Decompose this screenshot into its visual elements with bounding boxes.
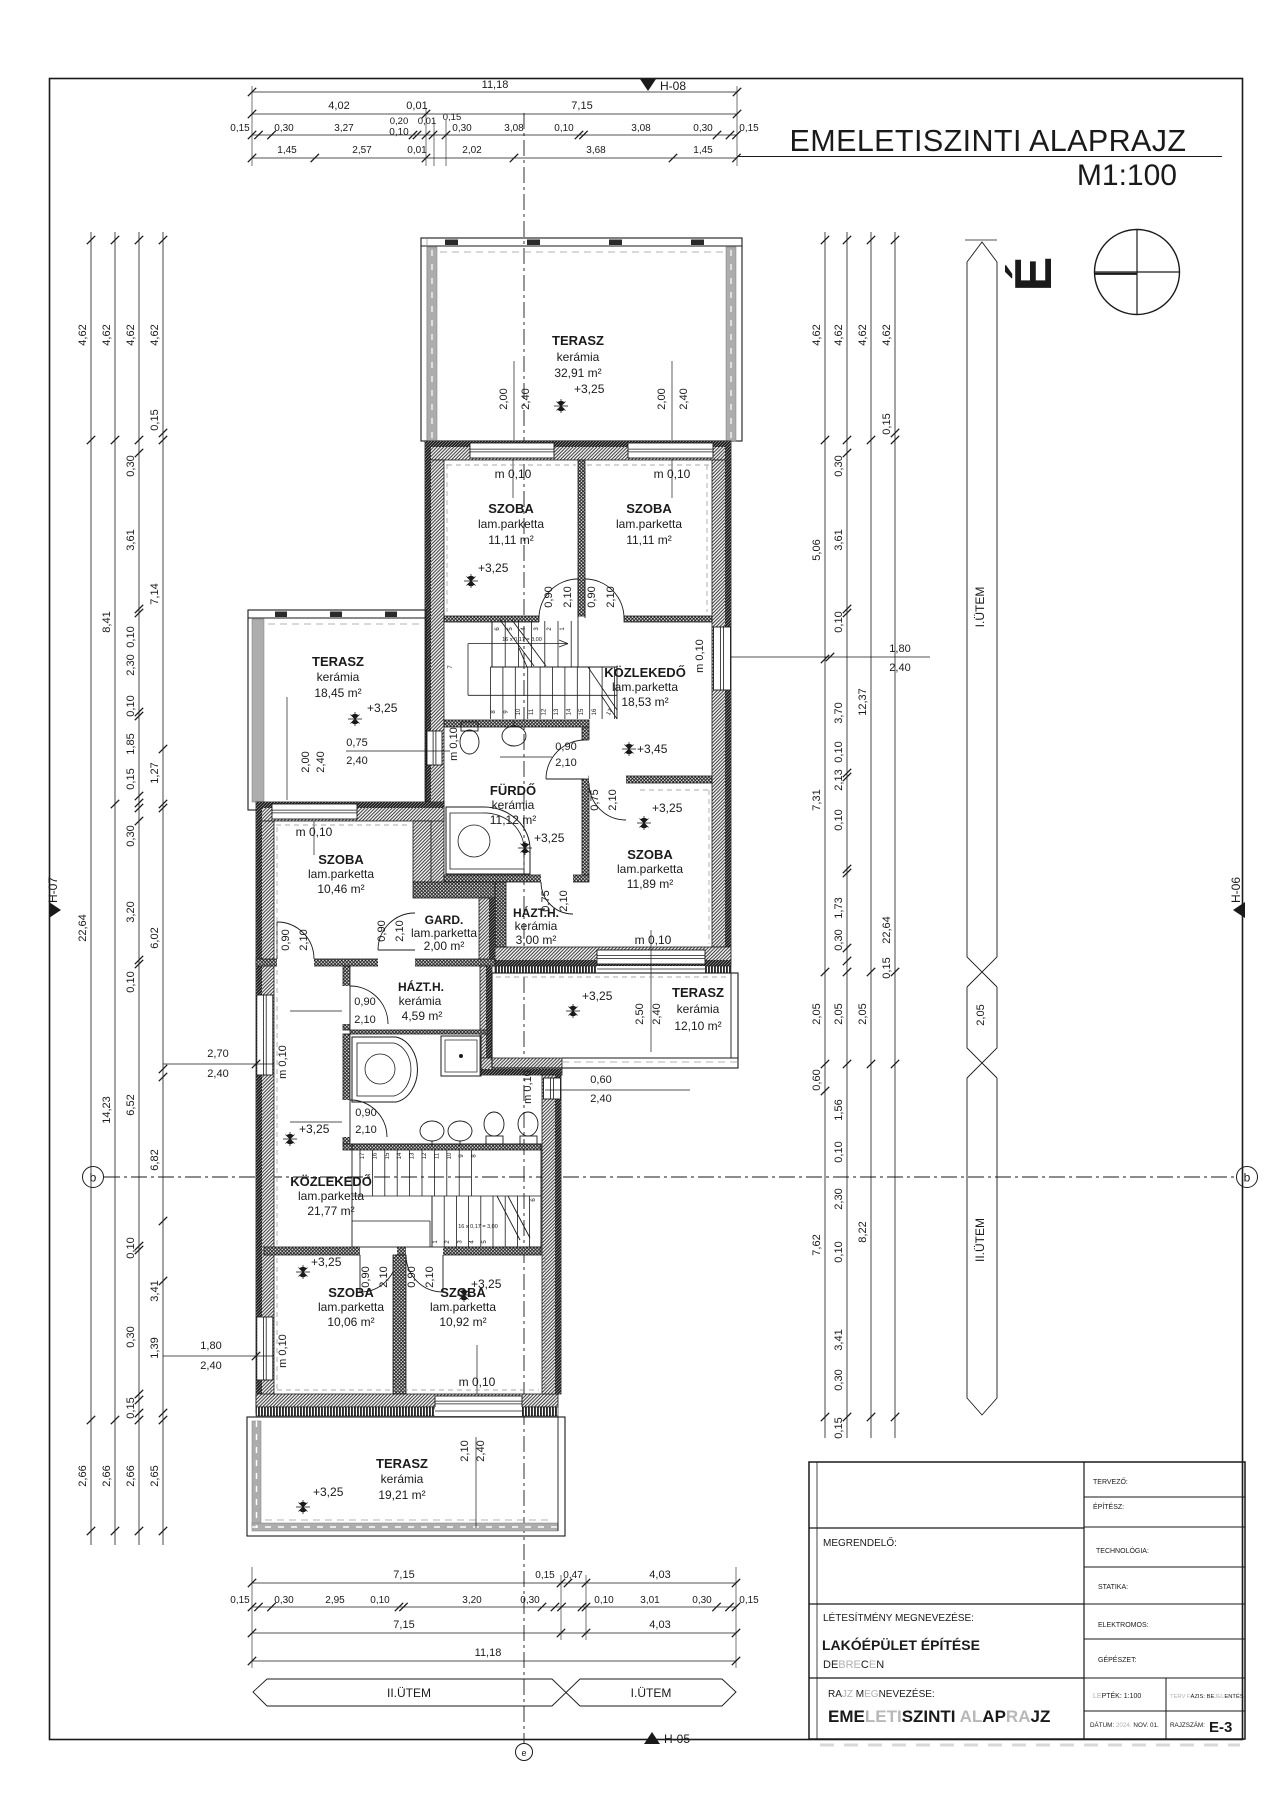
svg-text:0,15: 0,15 — [535, 1570, 555, 1581]
svg-text:kerámia: kerámia — [515, 919, 558, 933]
svg-text:0,15: 0,15 — [230, 123, 250, 134]
svg-text:0,01: 0,01 — [418, 116, 437, 127]
svg-text:16 x 0,17 = 3,00: 16 x 0,17 = 3,00 — [502, 637, 542, 643]
svg-text:TERASZ: TERASZ — [312, 654, 364, 669]
svg-text:2,66: 2,66 — [101, 1465, 113, 1486]
svg-text:2,66: 2,66 — [125, 1465, 137, 1486]
svg-text:+3,45: +3,45 — [637, 742, 668, 756]
svg-text:4,62: 4,62 — [125, 324, 137, 345]
svg-text:12: 12 — [422, 1152, 428, 1159]
svg-text:2,40: 2,40 — [207, 1068, 228, 1080]
svg-text:2,10: 2,10 — [298, 929, 310, 950]
svg-text:2,05: 2,05 — [811, 1003, 823, 1024]
svg-text:2,10: 2,10 — [605, 586, 617, 607]
svg-text:GÉPÉSZET:: GÉPÉSZET: — [1098, 1655, 1137, 1664]
svg-text:m 0,10: m 0,10 — [522, 1070, 534, 1104]
svg-text:0,15: 0,15 — [125, 1397, 137, 1418]
svg-text:3,68: 3,68 — [586, 145, 606, 156]
svg-text:II.ÜTEM: II.ÜTEM — [973, 1218, 987, 1262]
svg-text:H-05: H-05 — [664, 1732, 690, 1746]
svg-text:19,21 m²: 19,21 m² — [378, 1488, 425, 1502]
svg-text:4,02: 4,02 — [328, 100, 349, 112]
svg-text:2,40: 2,40 — [651, 1003, 663, 1024]
svg-text:GARD.: GARD. — [425, 913, 464, 927]
svg-text:2,30: 2,30 — [833, 1188, 845, 1209]
svg-text:1,85: 1,85 — [125, 733, 137, 754]
svg-text:lam.parketta: lam.parketta — [411, 926, 477, 940]
svg-text:5,06: 5,06 — [811, 539, 823, 560]
svg-text:0,30: 0,30 — [833, 1369, 845, 1390]
svg-text:kerámia: kerámia — [492, 798, 535, 812]
svg-text:0,15: 0,15 — [125, 768, 137, 789]
svg-text:2,05: 2,05 — [833, 1003, 845, 1024]
svg-text:11: 11 — [434, 1152, 440, 1159]
svg-text:0,15: 0,15 — [833, 1417, 845, 1438]
svg-text:22,64: 22,64 — [881, 916, 893, 944]
svg-text:ELEKTROMOS:: ELEKTROMOS: — [1098, 1622, 1149, 1629]
svg-text:3,20: 3,20 — [125, 901, 137, 922]
svg-text:EMELETISZINTI ALAPRAJZ: EMELETISZINTI ALAPRAJZ — [828, 1707, 1050, 1726]
svg-text:2,57: 2,57 — [352, 145, 372, 156]
svg-text:HÁZT.H.: HÁZT.H. — [513, 905, 559, 920]
svg-text:3,00 m²: 3,00 m² — [516, 933, 557, 947]
svg-text:TERASZ: TERASZ — [672, 985, 724, 1000]
svg-text:E-3: E-3 — [1209, 1719, 1232, 1736]
svg-text:0,01: 0,01 — [407, 145, 427, 156]
svg-text:0,75: 0,75 — [346, 737, 367, 749]
svg-text:0,30: 0,30 — [692, 1595, 712, 1606]
svg-text:2,10: 2,10 — [378, 1266, 390, 1287]
svg-text:13: 13 — [410, 1152, 416, 1159]
svg-text:15: 15 — [579, 708, 585, 715]
svg-text:2,66: 2,66 — [77, 1465, 89, 1486]
svg-text:m 0,10: m 0,10 — [277, 1045, 289, 1079]
svg-text:2,10: 2,10 — [555, 757, 576, 769]
svg-text:1,73: 1,73 — [833, 897, 845, 918]
svg-text:0,15: 0,15 — [739, 1595, 759, 1606]
svg-text:KÖZLEKEDŐ: KÖZLEKEDŐ — [290, 1174, 372, 1189]
svg-text:2,10: 2,10 — [424, 1266, 436, 1287]
svg-text:TERV FÁZIS: BEJELENTÉS: TERV FÁZIS: BEJELENTÉS — [1170, 1693, 1244, 1700]
svg-text:lam.parketta: lam.parketta — [308, 867, 374, 881]
svg-text:0,90: 0,90 — [555, 741, 576, 753]
svg-text:6,82: 6,82 — [149, 1149, 161, 1170]
svg-text:14: 14 — [567, 708, 573, 715]
svg-text:lam.parketta: lam.parketta — [318, 1300, 384, 1314]
svg-text:STATIKA:: STATIKA: — [1098, 1584, 1128, 1591]
svg-text:KÖZLEKEDŐ: KÖZLEKEDŐ — [604, 665, 686, 680]
svg-text:4,62: 4,62 — [881, 324, 893, 345]
svg-text:0,20: 0,20 — [390, 116, 409, 127]
svg-text:II.ÜTEM: II.ÜTEM — [387, 1686, 431, 1700]
svg-text:7,15: 7,15 — [393, 1619, 414, 1631]
svg-text:0,30: 0,30 — [693, 123, 713, 134]
svg-text:2,40: 2,40 — [315, 751, 327, 772]
svg-text:15: 15 — [385, 1152, 391, 1159]
svg-text:0,30: 0,30 — [125, 1326, 137, 1347]
svg-text:TECHNOLÓGIA:: TECHNOLÓGIA: — [1096, 1546, 1149, 1555]
svg-text:0,10: 0,10 — [125, 971, 137, 992]
svg-text:kerámia: kerámia — [677, 1002, 720, 1016]
svg-text:1,80: 1,80 — [889, 643, 910, 655]
svg-text:12,10 m²: 12,10 m² — [674, 1019, 721, 1033]
svg-text:2,05: 2,05 — [975, 1004, 987, 1025]
svg-text:+3,25: +3,25 — [582, 989, 613, 1003]
svg-text:0,30: 0,30 — [452, 123, 472, 134]
svg-text:6,52: 6,52 — [125, 1094, 137, 1115]
svg-text:2,40: 2,40 — [346, 755, 367, 767]
svg-text:e: e — [521, 1748, 526, 1758]
svg-text:4,59 m²: 4,59 m² — [402, 1009, 443, 1023]
svg-text:10,92 m²: 10,92 m² — [439, 1315, 486, 1329]
svg-text:3,61: 3,61 — [833, 529, 845, 550]
svg-text:0,10: 0,10 — [833, 809, 845, 830]
svg-text:2,50: 2,50 — [634, 1003, 646, 1024]
svg-text:18,45 m²: 18,45 m² — [314, 686, 361, 700]
svg-text:1,27: 1,27 — [149, 762, 161, 783]
svg-text:2,40: 2,40 — [590, 1093, 611, 1105]
svg-text:3,41: 3,41 — [149, 1280, 161, 1301]
svg-text:4,62: 4,62 — [149, 324, 161, 345]
svg-text:12,37: 12,37 — [857, 688, 869, 716]
svg-text:4,62: 4,62 — [833, 324, 845, 345]
svg-text:7,62: 7,62 — [811, 1234, 823, 1255]
svg-text:0,01: 0,01 — [406, 100, 427, 112]
svg-text:SZOBA: SZOBA — [488, 501, 534, 516]
svg-text:22,64: 22,64 — [77, 914, 89, 942]
svg-text:0,90: 0,90 — [586, 586, 598, 607]
svg-text:0,10: 0,10 — [833, 741, 845, 762]
svg-text:0,90: 0,90 — [360, 1266, 372, 1287]
svg-text:0,10: 0,10 — [389, 127, 409, 138]
svg-text:0,30: 0,30 — [125, 455, 137, 476]
svg-text:+3,25: +3,25 — [313, 1485, 344, 1499]
svg-text:lam.parketta: lam.parketta — [478, 517, 544, 531]
svg-text:+3,25: +3,25 — [367, 701, 398, 715]
svg-text:2,00: 2,00 — [300, 751, 312, 772]
svg-text:11,11 m²: 11,11 m² — [488, 533, 534, 547]
svg-text:0,30: 0,30 — [274, 1595, 294, 1606]
svg-text:0,90: 0,90 — [280, 929, 292, 950]
svg-text:2,65: 2,65 — [149, 1465, 161, 1486]
svg-text:18,53 m²: 18,53 m² — [621, 695, 668, 709]
svg-text:lam.parketta: lam.parketta — [430, 1300, 496, 1314]
svg-text:+3,25: +3,25 — [299, 1122, 330, 1136]
svg-text:1,45: 1,45 — [277, 145, 297, 156]
svg-text:0,15: 0,15 — [881, 413, 893, 434]
svg-text:RAJZSZÁM:: RAJZSZÁM: — [1170, 1720, 1205, 1729]
svg-text:0,75: 0,75 — [589, 789, 601, 810]
svg-text:b: b — [1244, 1171, 1251, 1185]
svg-text:16 x 0,17 = 3,00: 16 x 0,17 = 3,00 — [458, 1224, 498, 1230]
svg-text:14,23: 14,23 — [101, 1096, 113, 1124]
svg-text:0,10: 0,10 — [833, 611, 845, 632]
svg-text:2,05: 2,05 — [857, 1003, 869, 1024]
svg-text:DÁTUM: 2024. NOV. 01.: DÁTUM: 2024. NOV. 01. — [1090, 1720, 1159, 1729]
svg-text:0,10: 0,10 — [833, 1141, 845, 1162]
svg-text:+3,25: +3,25 — [574, 382, 605, 396]
svg-text:SZOBA: SZOBA — [318, 852, 364, 867]
svg-text:+3,25: +3,25 — [478, 561, 509, 575]
svg-text:2,10: 2,10 — [558, 890, 570, 911]
svg-text:13: 13 — [554, 708, 560, 715]
svg-text:21,77 m²: 21,77 m² — [307, 1204, 354, 1218]
svg-text:EMELETISZINTI ALAPRAJZ: EMELETISZINTI ALAPRAJZ — [790, 124, 1187, 158]
svg-text:0,10: 0,10 — [370, 1595, 390, 1606]
svg-text:2,95: 2,95 — [325, 1595, 345, 1606]
svg-text:0,10: 0,10 — [125, 695, 137, 716]
svg-text:16: 16 — [372, 1152, 378, 1159]
svg-text:2,10: 2,10 — [607, 789, 619, 810]
svg-text:6,02: 6,02 — [149, 927, 161, 948]
svg-text:7,14: 7,14 — [149, 583, 161, 604]
svg-text:LÉTESÍTMÉNY MEGNEVEZÉSE:: LÉTESÍTMÉNY MEGNEVEZÉSE: — [823, 1611, 974, 1624]
svg-text:0,90: 0,90 — [354, 996, 375, 1008]
svg-text:m 0,10: m 0,10 — [694, 639, 706, 673]
svg-text:+3,25: +3,25 — [311, 1255, 342, 1269]
svg-text:H-06: H-06 — [1229, 877, 1243, 903]
svg-text:TERASZ: TERASZ — [552, 333, 604, 348]
svg-text:lam.parketta: lam.parketta — [298, 1189, 364, 1203]
svg-text:2,10: 2,10 — [355, 1124, 376, 1136]
svg-text:8,22: 8,22 — [857, 1221, 869, 1242]
svg-text:7,15: 7,15 — [393, 1569, 414, 1581]
svg-text:0,90: 0,90 — [376, 920, 388, 941]
svg-text:2,13: 2,13 — [833, 769, 845, 790]
svg-text:16: 16 — [592, 708, 598, 715]
svg-text:0,75: 0,75 — [540, 890, 552, 911]
svg-text:H-07: H-07 — [46, 877, 60, 903]
svg-text:2,10: 2,10 — [394, 920, 406, 941]
svg-text:11,12 m²: 11,12 m² — [490, 813, 536, 827]
svg-text:SZOBA: SZOBA — [627, 847, 673, 862]
svg-text:É: É — [1005, 257, 1063, 292]
svg-text:+3,25: +3,25 — [652, 801, 683, 815]
svg-text:kerámia: kerámia — [557, 350, 600, 364]
svg-text:RAJZ MEGNEVEZÉSE:: RAJZ MEGNEVEZÉSE: — [828, 1687, 935, 1700]
svg-text:4,03: 4,03 — [649, 1619, 670, 1631]
svg-text:3,70: 3,70 — [833, 702, 845, 723]
svg-text:11,18: 11,18 — [475, 1647, 502, 1659]
svg-text:1,45: 1,45 — [693, 145, 713, 156]
svg-text:0,15: 0,15 — [443, 112, 462, 123]
svg-text:2,40: 2,40 — [200, 1360, 221, 1372]
svg-text:DEBRECEN: DEBRECEN — [823, 1659, 884, 1671]
svg-text:3,08: 3,08 — [631, 123, 651, 134]
svg-text:+3,25: +3,25 — [471, 1277, 502, 1291]
svg-text:LAKÓÉPÜLET ÉPÍTÉSE: LAKÓÉPÜLET ÉPÍTÉSE — [822, 1636, 980, 1653]
svg-text:m 0,10: m 0,10 — [635, 933, 672, 947]
svg-text:1,80: 1,80 — [200, 1340, 221, 1352]
svg-text:11,89 m²: 11,89 m² — [627, 877, 673, 891]
svg-text:10,46 m²: 10,46 m² — [317, 882, 364, 896]
svg-text:2,10: 2,10 — [562, 586, 574, 607]
svg-text:17: 17 — [360, 1152, 366, 1159]
svg-text:2,00 m²: 2,00 m² — [424, 939, 465, 953]
svg-text:0,47: 0,47 — [563, 1570, 583, 1581]
svg-text:7,15: 7,15 — [571, 100, 592, 112]
svg-text:1,56: 1,56 — [833, 1099, 845, 1120]
svg-text:2,30: 2,30 — [125, 654, 137, 675]
svg-text:0,60: 0,60 — [811, 1069, 823, 1090]
svg-text:MEGRENDELŐ:: MEGRENDELŐ: — [823, 1535, 897, 1549]
svg-text:m 0,10: m 0,10 — [277, 1334, 289, 1368]
svg-text:1,39: 1,39 — [149, 1337, 161, 1358]
svg-text:0,30: 0,30 — [520, 1595, 540, 1606]
svg-text:0,90: 0,90 — [406, 1266, 418, 1287]
svg-text:0,15: 0,15 — [739, 123, 759, 134]
svg-text:7,31: 7,31 — [811, 789, 823, 810]
svg-text:I.ÜTEM: I.ÜTEM — [631, 1686, 672, 1700]
svg-text:0,30: 0,30 — [274, 123, 294, 134]
svg-text:M1:100: M1:100 — [1077, 159, 1177, 192]
svg-text:2,00: 2,00 — [498, 388, 510, 409]
svg-text:kerámia: kerámia — [317, 670, 360, 684]
svg-text:11: 11 — [529, 708, 535, 715]
svg-text:0,10: 0,10 — [125, 626, 137, 647]
svg-text:0,30: 0,30 — [125, 825, 137, 846]
svg-text:0,15: 0,15 — [149, 409, 161, 430]
svg-text:32,91 m²: 32,91 m² — [554, 366, 601, 380]
svg-text:FÜRDŐ: FÜRDŐ — [490, 783, 536, 798]
svg-text:+3,25: +3,25 — [534, 831, 565, 845]
svg-text:lam.parketta: lam.parketta — [616, 517, 682, 531]
svg-text:3,08: 3,08 — [504, 123, 524, 134]
svg-text:0,60: 0,60 — [590, 1074, 611, 1086]
svg-text:11,18: 11,18 — [482, 79, 509, 91]
svg-text:12: 12 — [541, 708, 547, 715]
svg-text:8,41: 8,41 — [101, 611, 113, 632]
svg-text:2,70: 2,70 — [207, 1048, 228, 1060]
svg-text:3,27: 3,27 — [334, 123, 354, 134]
svg-text:2,40: 2,40 — [889, 662, 910, 674]
svg-text:TERASZ: TERASZ — [376, 1456, 428, 1471]
svg-text:3,41: 3,41 — [833, 1329, 845, 1350]
svg-text:m 0,10: m 0,10 — [448, 727, 460, 761]
svg-text:3,01: 3,01 — [640, 1595, 660, 1606]
svg-text:TERVEZŐ:: TERVEZŐ: — [1093, 1477, 1128, 1486]
svg-text:kerámia: kerámia — [381, 1472, 424, 1486]
svg-text:HÁZT.H.: HÁZT.H. — [398, 979, 444, 994]
svg-text:0,30: 0,30 — [833, 929, 845, 950]
svg-text:4,62: 4,62 — [857, 324, 869, 345]
svg-text:0,15: 0,15 — [881, 957, 893, 978]
svg-text:0,30: 0,30 — [833, 455, 845, 476]
svg-text:10,06 m²: 10,06 m² — [327, 1315, 374, 1329]
svg-text:0,10: 0,10 — [594, 1595, 614, 1606]
svg-text:kerámia: kerámia — [399, 994, 442, 1008]
svg-text:ÉPÍTÉSZ:: ÉPÍTÉSZ: — [1093, 1502, 1124, 1511]
svg-text:lam.parketta: lam.parketta — [612, 680, 678, 694]
svg-text:4,03: 4,03 — [649, 1569, 670, 1581]
svg-text:3,61: 3,61 — [125, 529, 137, 550]
svg-text:3,20: 3,20 — [462, 1595, 482, 1606]
svg-text:4,62: 4,62 — [811, 324, 823, 345]
svg-text:2,40: 2,40 — [520, 388, 532, 409]
svg-text:2,10: 2,10 — [459, 1440, 471, 1461]
svg-text:0,10: 0,10 — [125, 1237, 137, 1258]
svg-text:2,00: 2,00 — [656, 388, 668, 409]
svg-text:4,62: 4,62 — [101, 324, 113, 345]
svg-text:0,10: 0,10 — [554, 123, 574, 134]
svg-text:0,15: 0,15 — [230, 1595, 250, 1606]
svg-text:I.ÜTEM: I.ÜTEM — [973, 587, 987, 628]
svg-text:4,62: 4,62 — [77, 324, 89, 345]
svg-text:0,90: 0,90 — [543, 586, 555, 607]
svg-text:H-08: H-08 — [660, 79, 686, 93]
svg-text:2,02: 2,02 — [462, 145, 482, 156]
svg-text:2,10: 2,10 — [354, 1014, 375, 1026]
svg-text:14: 14 — [397, 1152, 403, 1159]
svg-text:2,40: 2,40 — [475, 1440, 487, 1461]
svg-text:2,40: 2,40 — [678, 388, 690, 409]
svg-text:0,90: 0,90 — [355, 1107, 376, 1119]
svg-text:SZOBA: SZOBA — [626, 501, 672, 516]
svg-text:11,11 m²: 11,11 m² — [626, 533, 672, 547]
svg-text:10: 10 — [516, 708, 522, 715]
svg-text:lam.parketta: lam.parketta — [617, 862, 683, 876]
svg-text:10: 10 — [447, 1152, 453, 1159]
svg-text:LEPTÉK: 1:100: LEPTÉK: 1:100 — [1093, 1691, 1141, 1700]
svg-text:0,10: 0,10 — [833, 1241, 845, 1262]
